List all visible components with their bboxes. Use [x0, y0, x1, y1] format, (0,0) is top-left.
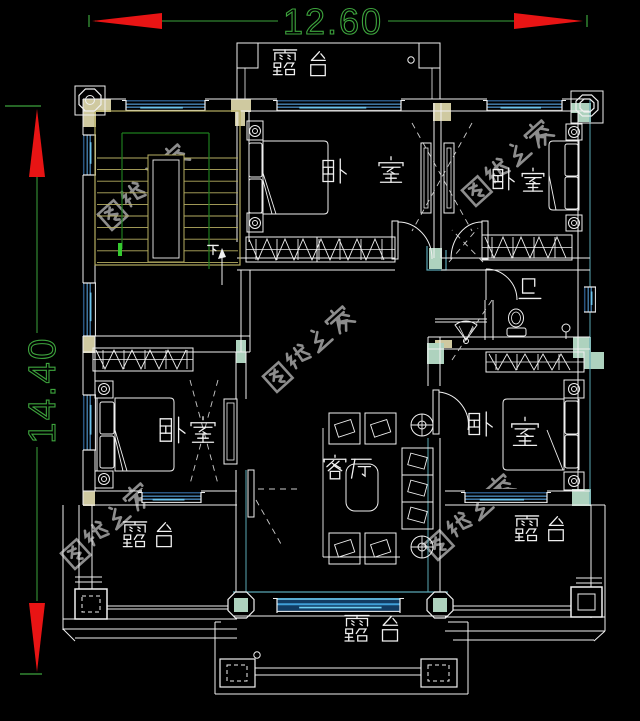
svg-text:14.40: 14.40 — [22, 336, 64, 444]
svg-text:12.60: 12.60 — [283, 1, 383, 42]
